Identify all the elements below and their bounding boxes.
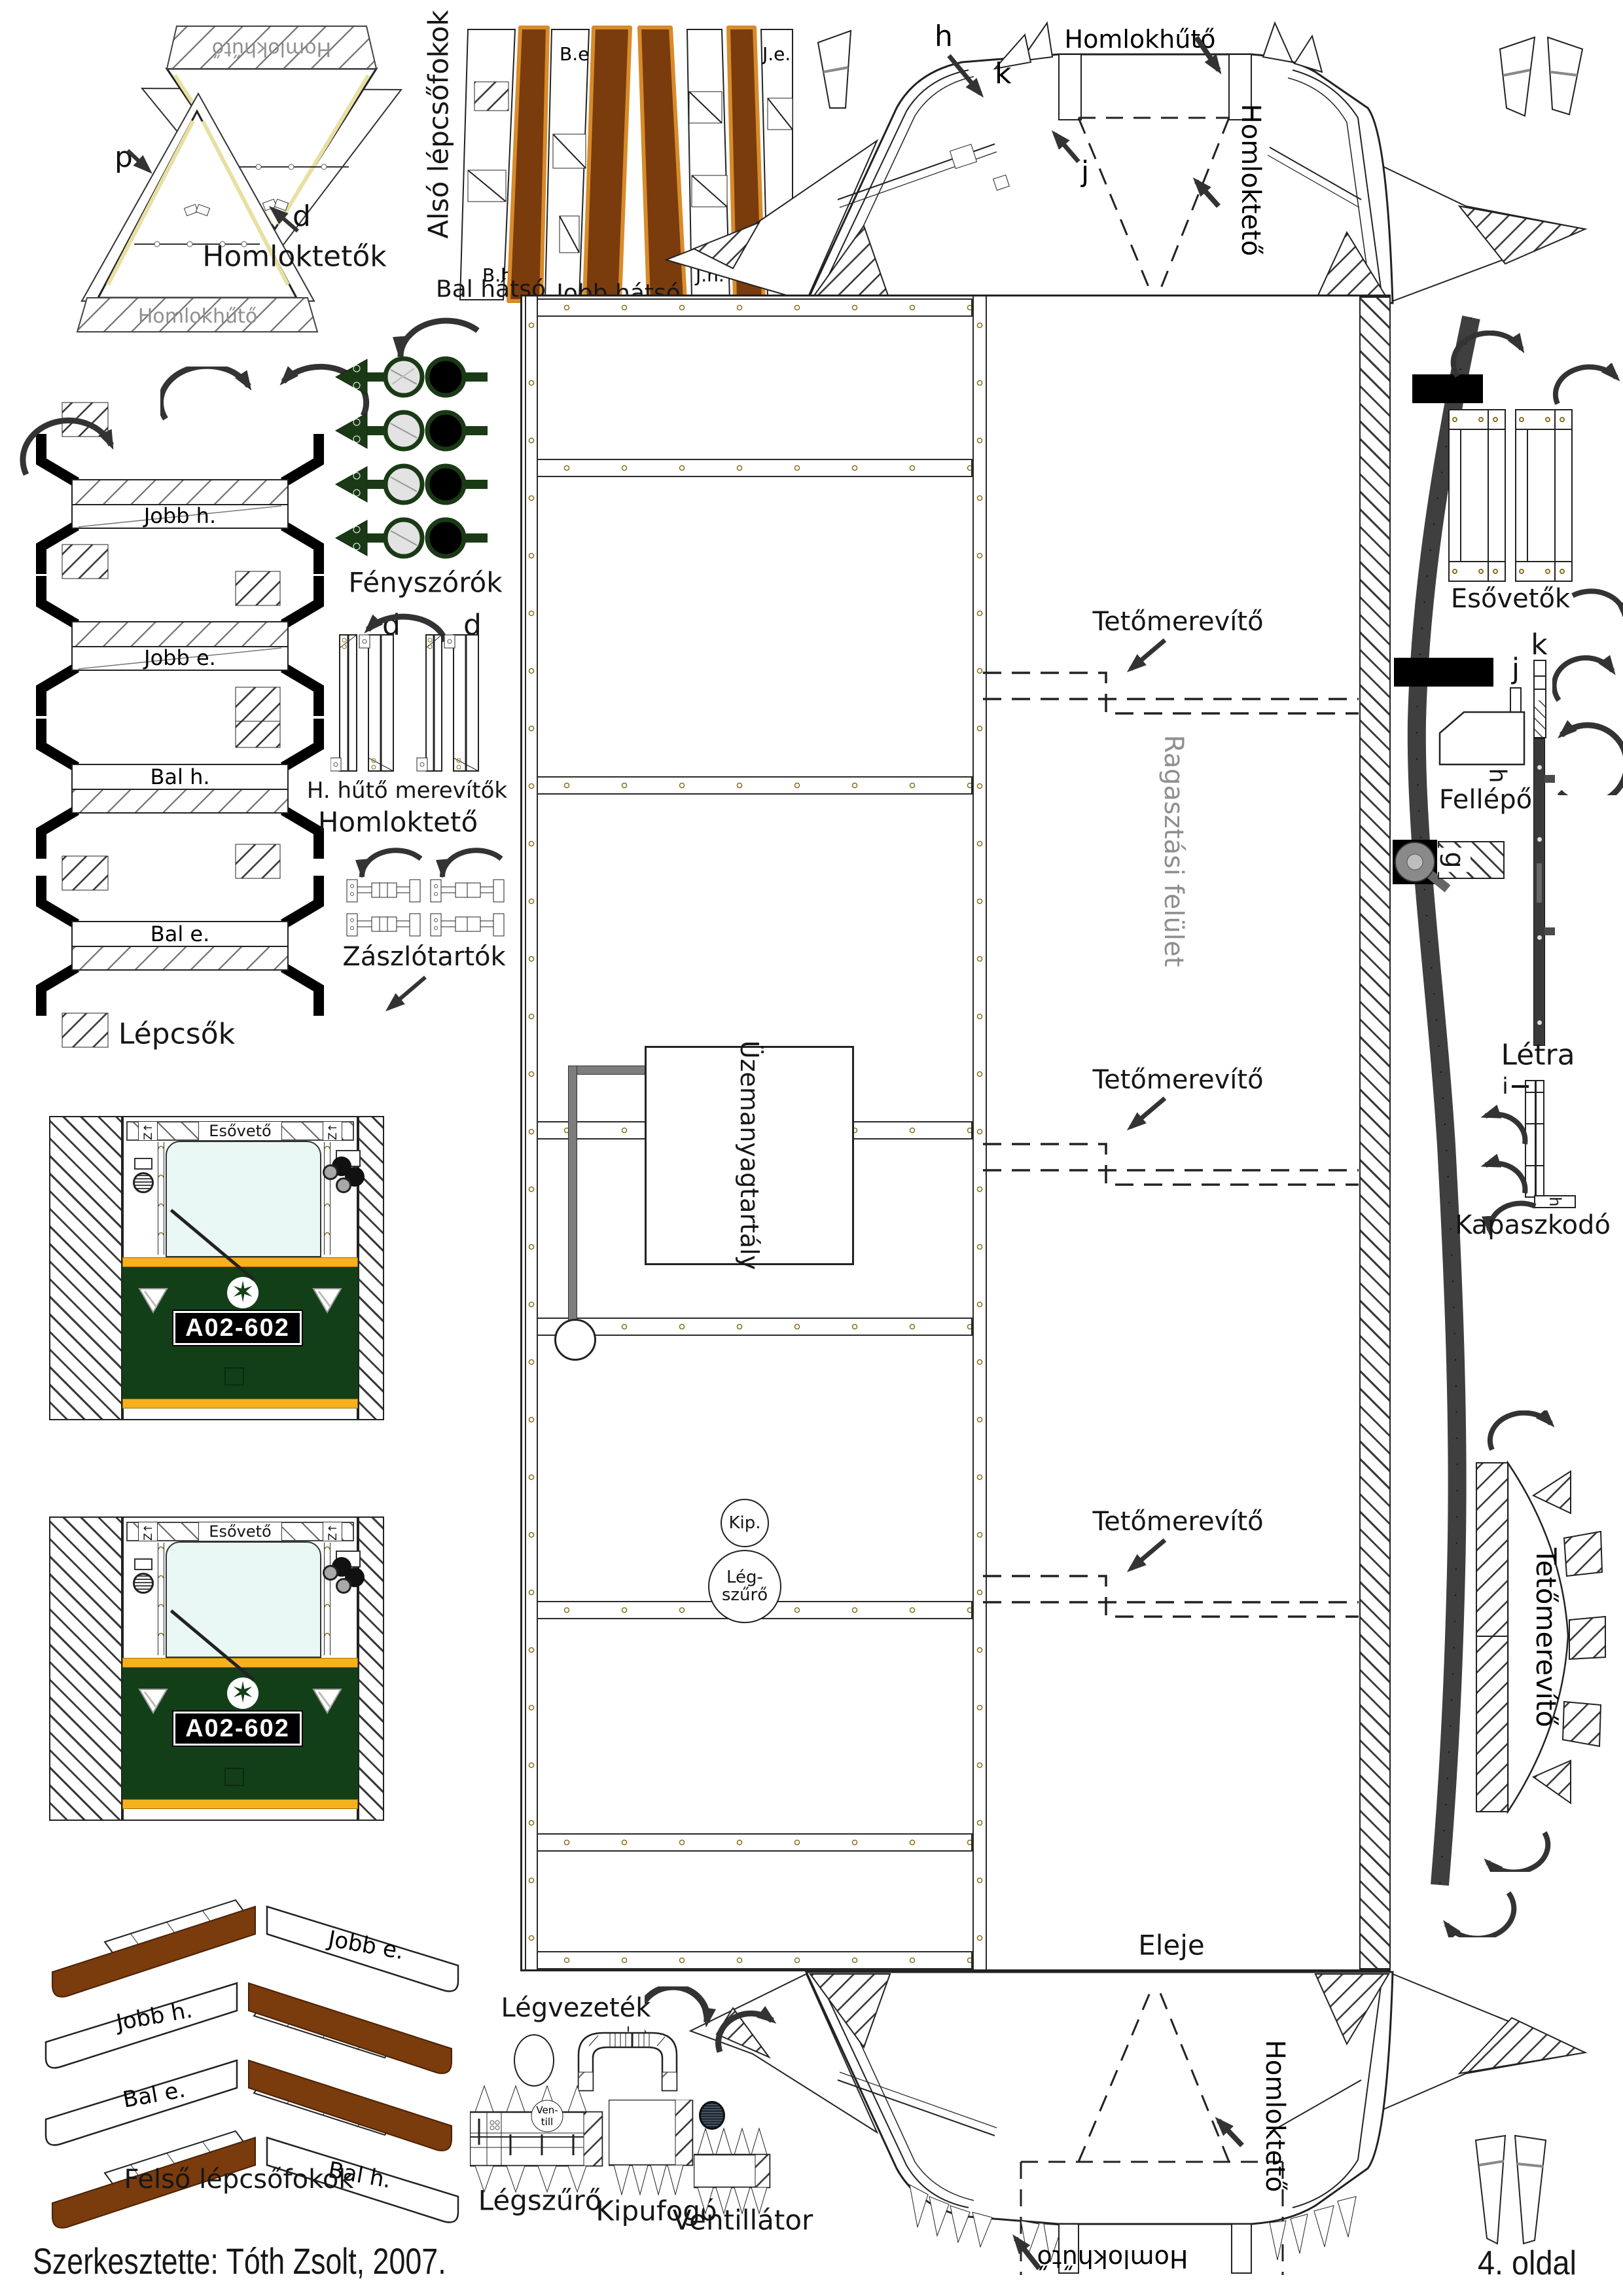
number-plate: A02-602 xyxy=(173,1311,302,1345)
fellepo-label: Fellépő xyxy=(1439,785,1532,815)
esoveto-label: Esővető xyxy=(209,1522,271,1541)
pillar-rivets-left xyxy=(158,1142,164,1255)
strip-top-arrow xyxy=(1450,331,1535,383)
h-mark-kapaszkodo: h xyxy=(1546,1196,1564,1206)
ventillator-label: Ventillátor xyxy=(673,2204,813,2236)
strip-bottom-arrow xyxy=(1433,1885,1518,1937)
z-mark-label: Z↑ xyxy=(327,1524,340,1541)
number-plate: A02-602 xyxy=(173,1712,302,1746)
legszuro-label: Légszűrő xyxy=(478,2185,602,2217)
body-band xyxy=(537,776,972,795)
front-orange-band-bottom xyxy=(122,1799,358,1809)
coupler-detail xyxy=(224,1768,244,1786)
svg-text:p: p xyxy=(115,141,133,174)
lamp-triangle-right xyxy=(311,1685,344,1715)
esoveto-strip-label-box: Esővető xyxy=(198,1522,282,1541)
cab-side-hatch-right xyxy=(358,1516,384,1821)
eleje-label: Eleje xyxy=(1138,1929,1205,1962)
cab-front-illustration-1: Esővető Z↑ Z↑ ✶ A02-602 xyxy=(49,1116,384,1420)
star-icon: ✶ xyxy=(231,1278,255,1307)
svg-text:B.e.: B.e. xyxy=(560,43,595,65)
cab-front-illustration-2: Esővető Z↑ Z↑ ✶ A02-602 xyxy=(49,1516,384,1821)
coupler-detail xyxy=(224,1367,244,1386)
lens-arrow-bottom xyxy=(1476,1826,1554,1872)
fuel-pipe-horizontal xyxy=(568,1066,648,1075)
fuel-tank-label: Üzemanyagtartály xyxy=(735,1041,764,1270)
stairs-arrow-2 xyxy=(160,367,265,425)
tetomerevito-label-3: Tetőmerevítő xyxy=(1092,1507,1263,1537)
z-mark-left: Z↑ xyxy=(138,1121,158,1141)
legvezetek-label: Légvezeték xyxy=(501,1993,651,2023)
lamp-triangle-right xyxy=(311,1285,344,1315)
headlight-cluster xyxy=(323,1150,359,1196)
star-icon: ✶ xyxy=(231,1679,255,1708)
k-mark: k xyxy=(1531,628,1547,662)
homloktetok-pieces: Homlokhűtő Homlokhűtő p d xyxy=(36,10,481,337)
svg-text:Homlokhűtő: Homlokhűtő xyxy=(1037,2244,1188,2273)
cab-side-hatch-left xyxy=(49,1516,122,1821)
vent-grille-circle xyxy=(133,1573,154,1594)
z-mark-right: Z↑ xyxy=(323,1121,342,1141)
zaszlotartok-arrow-down xyxy=(373,972,432,1018)
esoveto-label: Esővető xyxy=(209,1122,271,1140)
legszuro-hole: Lég- szűrő xyxy=(708,1550,781,1623)
vent-grille-circle xyxy=(133,1172,154,1193)
huto-merevitok-label: H. hűtő merevítők xyxy=(307,778,507,804)
tetomerevito-arrow-2 xyxy=(1113,1093,1171,1139)
fuel-pipe-vertical xyxy=(568,1066,577,1327)
rear-end-piece: h k j Homlokhűtő Homloktető xyxy=(654,10,1623,331)
legszuro-hole-line1: Lég- xyxy=(726,1569,763,1587)
fenyszorok-arrow xyxy=(386,304,491,360)
number-plate-text: A02-602 xyxy=(185,1715,290,1743)
svg-text:Homloktető: Homloktető xyxy=(1236,104,1266,257)
headlight-cluster xyxy=(323,1551,359,1596)
z-mark-label: Z↑ xyxy=(142,1123,155,1140)
roof-mark-3 xyxy=(982,1564,1361,1630)
huto-merevitok-pieces xyxy=(330,630,494,780)
svg-text:Bal e.: Bal e. xyxy=(151,922,209,946)
svg-text:Jobb e.: Jobb e. xyxy=(143,645,216,670)
tetomerevito-arrow-1 xyxy=(1113,635,1171,681)
fenyszorok-pieces xyxy=(330,350,527,566)
star-emblem: ✶ xyxy=(227,1677,259,1709)
z-mark-left: Z↑ xyxy=(138,1522,158,1541)
esovetok-arrow-1 xyxy=(1551,363,1623,409)
zaszlotarto-arrow-2 xyxy=(431,839,509,882)
vent-grille-box xyxy=(134,1158,152,1170)
roof-mark-2 xyxy=(982,1132,1361,1198)
lamp-triangle-left xyxy=(137,1285,169,1315)
glue-surface-label: Ragasztási felület xyxy=(1158,735,1188,967)
body-left-rivets xyxy=(525,296,538,1969)
z-mark-label: Z↑ xyxy=(327,1123,340,1140)
roof-mark-1 xyxy=(982,661,1361,726)
z-mark-right: Z↑ xyxy=(323,1522,342,1541)
body-band xyxy=(537,1833,972,1852)
lamp-triangle-left xyxy=(137,1685,169,1715)
pillar-rivets-left xyxy=(158,1543,164,1655)
also-lepcsofokok-label: Alsó lépcsőfokok xyxy=(423,10,455,239)
letra-bar xyxy=(1533,738,1545,1046)
esoveto-piece-1 xyxy=(1448,409,1506,582)
body-glue-band xyxy=(1359,296,1391,1969)
svg-text:Homlokhűtő: Homlokhűtő xyxy=(138,305,257,328)
kip-label: Kip. xyxy=(728,1513,760,1533)
svg-text:Homlokhűtő: Homlokhűtő xyxy=(1065,25,1216,54)
zaszlotarto-pieces xyxy=(346,878,509,941)
svg-text:j: j xyxy=(1080,155,1089,188)
zaszlotartok-label: Zászlótartók xyxy=(342,942,505,972)
k-strip xyxy=(1533,660,1546,738)
windscreen xyxy=(166,1541,321,1658)
g-mark: g xyxy=(1438,848,1471,872)
body-band xyxy=(537,459,972,477)
cab-side-hatch-left xyxy=(49,1116,122,1420)
headlight-row xyxy=(336,359,488,395)
esoveto-strip-label-box: Esővető xyxy=(198,1121,282,1141)
homloktetok-label: Homloktetők xyxy=(202,240,386,274)
stairs-arrow-1 xyxy=(20,409,131,481)
esovetok-arrow-2 xyxy=(1567,583,1623,628)
kapaszkodo-arrow-1 xyxy=(1476,1100,1535,1149)
svg-text:Bal e.: Bal e. xyxy=(121,2077,188,2113)
zaszlotarto-arrow-1 xyxy=(350,839,429,882)
lepcsok-label: Lépcsők xyxy=(118,1018,235,1051)
svg-text:Jobb h.: Jobb h. xyxy=(143,503,216,528)
k-strip-lines2 xyxy=(1533,689,1546,690)
credit-text: Szerkesztette: Tóth Zsolt, 2007. xyxy=(33,2240,446,2282)
tetomerevito-label-1: Tetőmerevítő xyxy=(1092,607,1263,637)
lens-arrow-top xyxy=(1486,1410,1564,1456)
kipufogo-piece xyxy=(609,2100,697,2198)
svg-text:Ven-: Ven- xyxy=(536,2104,558,2116)
k-strip-lines xyxy=(1533,675,1546,677)
kapaszkodo-arrow-2 xyxy=(1476,1149,1535,1198)
star-emblem: ✶ xyxy=(227,1277,259,1308)
legvezetek-duct xyxy=(573,2026,681,2092)
legvezetek-ellipse xyxy=(514,2034,554,2087)
vent-grille-box xyxy=(134,1558,152,1570)
h-mark-fellepo: h xyxy=(1484,768,1511,783)
k-arrow-1 xyxy=(1552,655,1623,707)
windscreen xyxy=(166,1141,321,1257)
cab-side-hatch-right xyxy=(358,1116,384,1420)
svg-text:till: till xyxy=(541,2116,553,2128)
page-number: 4. oldal xyxy=(1478,2244,1577,2283)
body-band xyxy=(537,1318,972,1336)
esovetok-label: Esővetők xyxy=(1451,584,1570,614)
legszuro-hole-line2: szűrő xyxy=(722,1587,768,1604)
svg-text:Bal h.: Bal h. xyxy=(150,764,209,789)
tetomerevito-label-2: Tetőmerevítő xyxy=(1092,1065,1263,1095)
felso-lepcsofokok-label: Felső lépcsőfokok xyxy=(124,2164,354,2195)
body-band xyxy=(537,298,972,317)
svg-text:Tetőmerevítő: Tetőmerevítő xyxy=(1530,1547,1562,1727)
number-plate-text: A02-602 xyxy=(185,1314,290,1342)
esoveto-piece-2 xyxy=(1515,409,1573,582)
z-mark-label: Z↑ xyxy=(142,1524,155,1541)
papercraft-sheet: Homlokhűtő Homlokhűtő p d Homloktetők Al… xyxy=(0,0,1623,2296)
tetomerevito-lens-piece: Tetőmerevítő xyxy=(1471,1453,1612,1820)
front-orange-band-bottom xyxy=(122,1399,358,1408)
i-mark: i xyxy=(1502,1073,1508,1100)
fuel-pipe-end-circle xyxy=(554,1319,596,1361)
letra-label: Létra xyxy=(1501,1039,1575,1072)
fenyszorok-label: Fényszórók xyxy=(348,567,502,599)
svg-text:Homloktető: Homloktető xyxy=(1260,2040,1290,2193)
svg-text:h: h xyxy=(935,20,953,53)
svg-text:k: k xyxy=(995,57,1012,90)
fellepo-piece xyxy=(1436,708,1528,768)
kapaszkodo-label: Kapaszkodó xyxy=(1455,1210,1611,1240)
tetomerevito-arrow-3 xyxy=(1113,1535,1171,1581)
homlokteto-mid-label: Homloktető xyxy=(318,806,478,838)
j-mark: j xyxy=(1512,653,1520,686)
svg-text:Homlokhűtő: Homlokhűtő xyxy=(212,37,331,60)
kip-hole: Kip. xyxy=(721,1499,769,1547)
k-arrow-2 xyxy=(1550,710,1623,795)
body-band xyxy=(537,1951,972,1969)
